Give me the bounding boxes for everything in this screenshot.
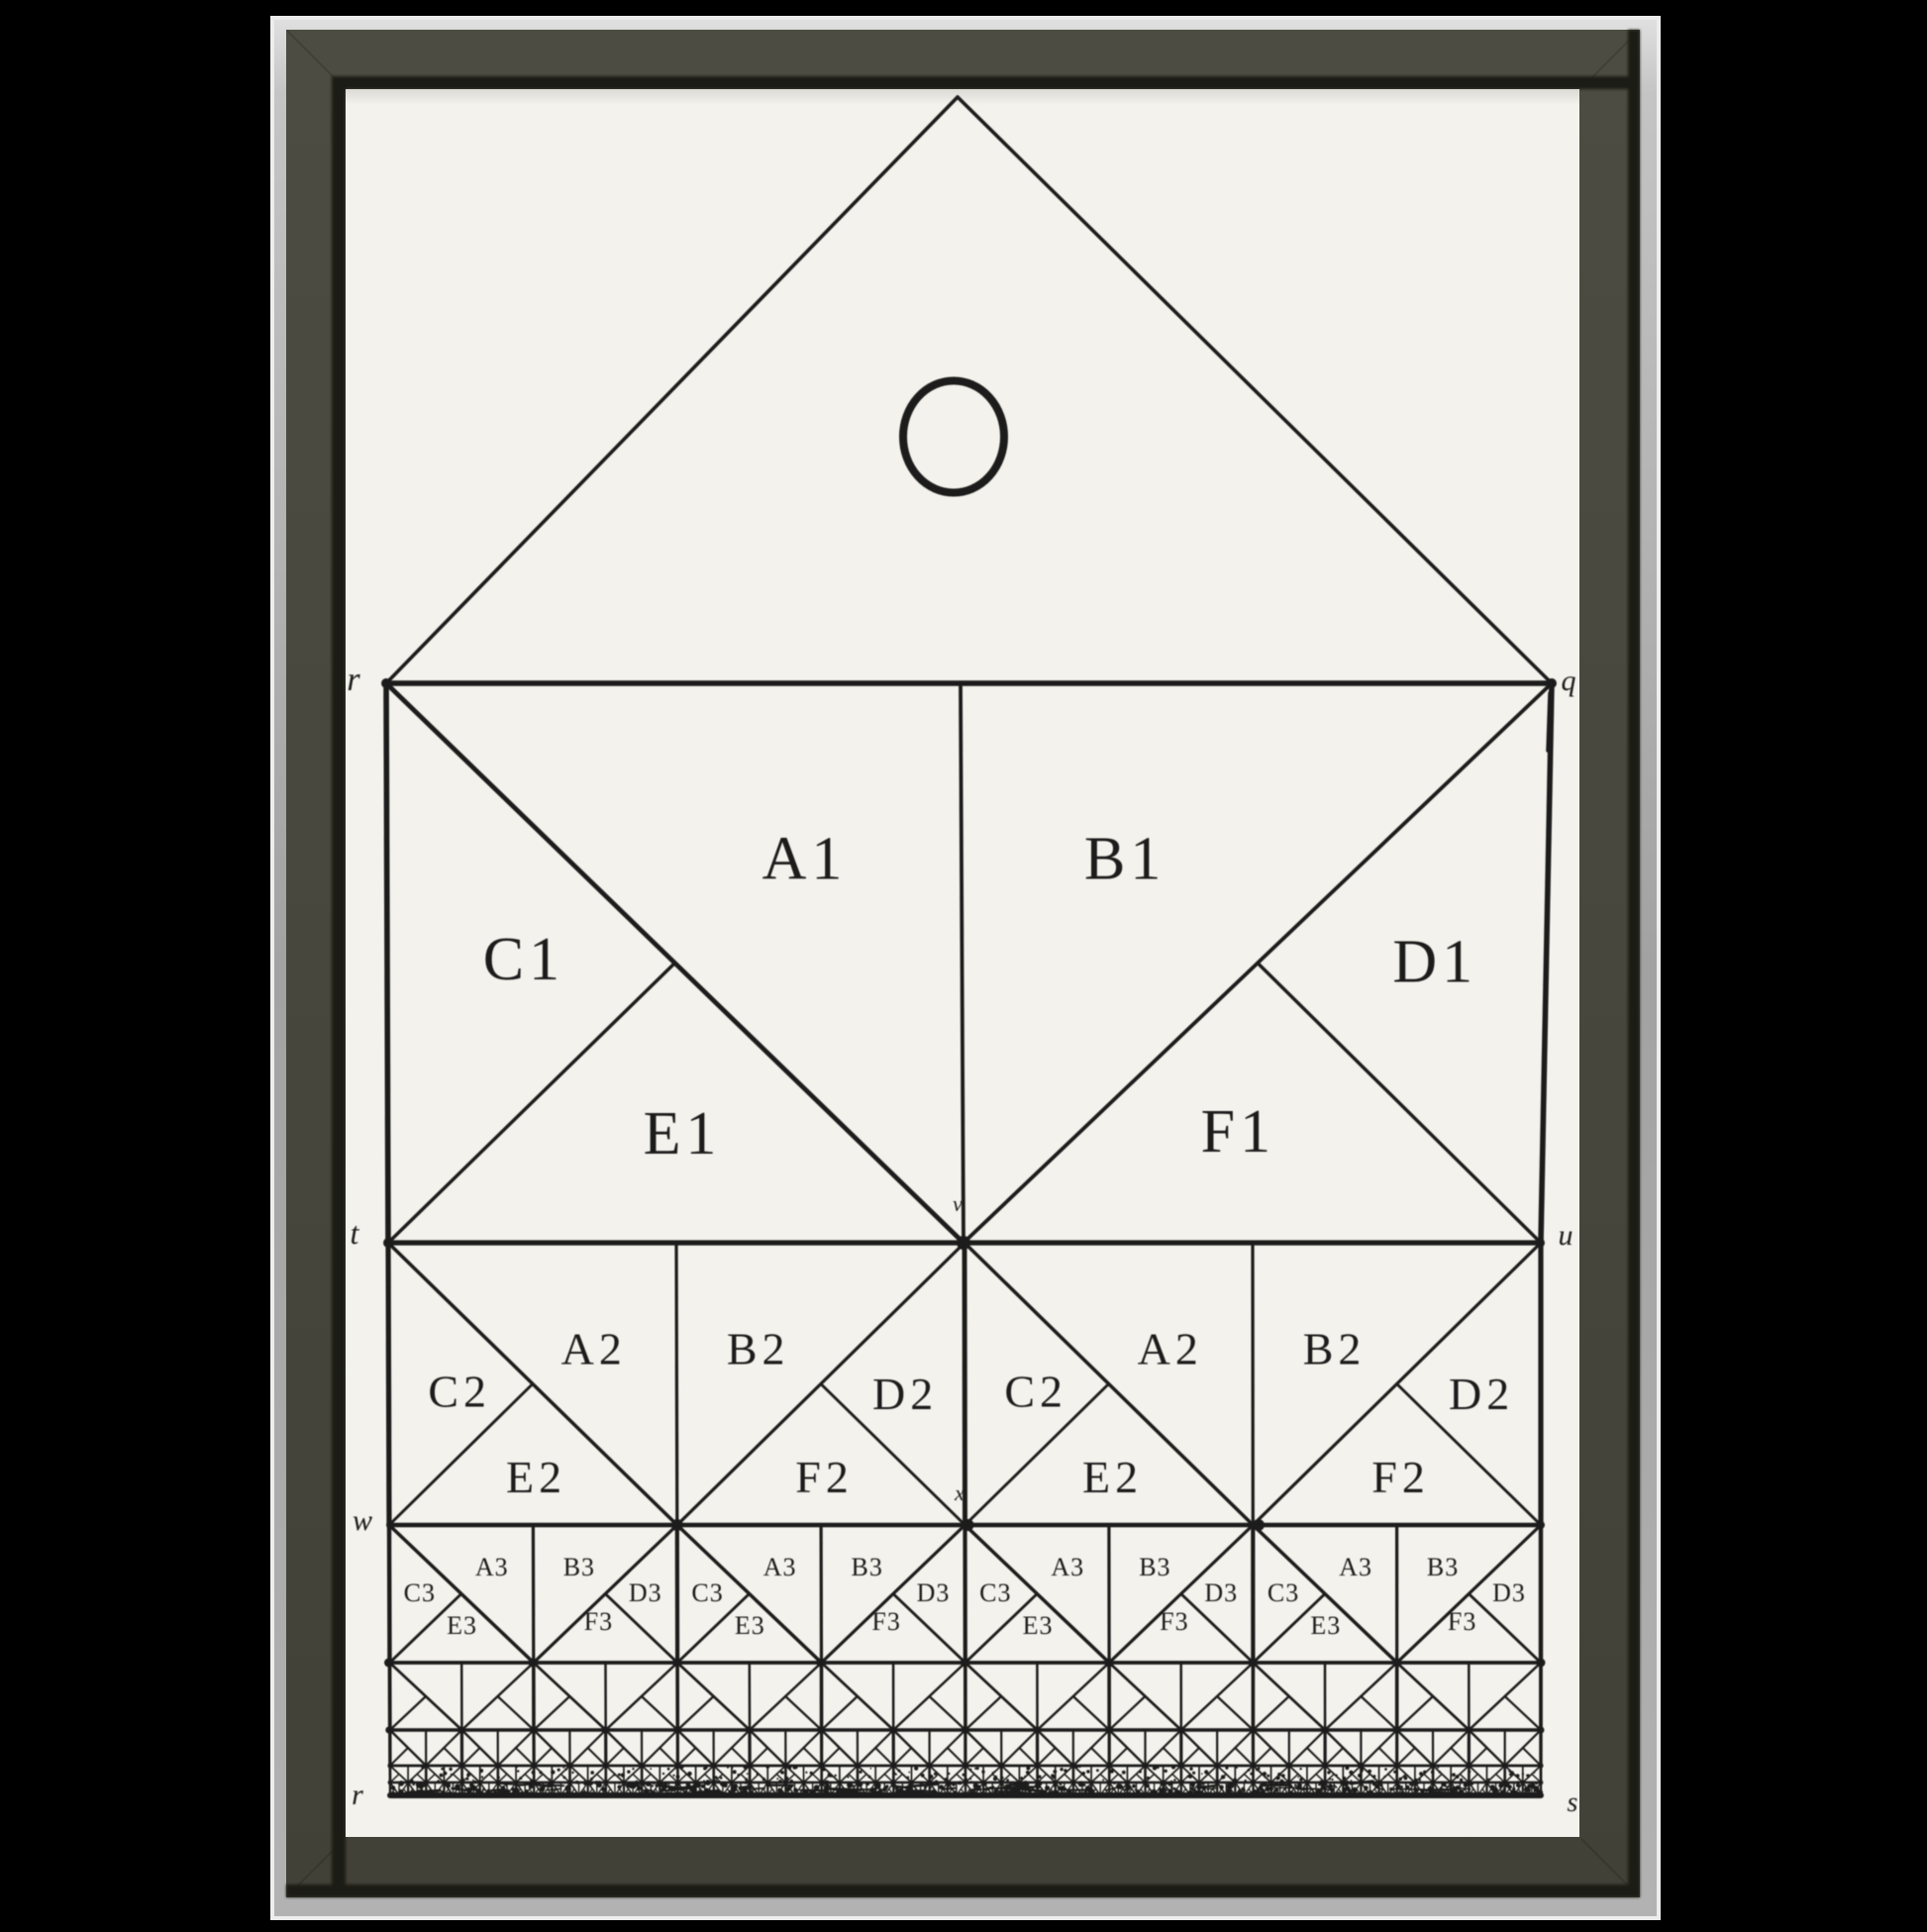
svg-text:C3: C3 (404, 1578, 436, 1607)
svg-text:B3: B3 (1427, 1553, 1459, 1581)
svg-text:C2: C2 (428, 1366, 491, 1416)
svg-text:D1: D1 (1392, 928, 1477, 995)
svg-text:C1: C1 (483, 926, 564, 993)
svg-text:D3: D3 (629, 1578, 662, 1607)
svg-text:F2: F2 (795, 1452, 854, 1502)
svg-text:E2: E2 (506, 1452, 566, 1502)
svg-text:E3: E3 (1310, 1611, 1341, 1640)
svg-text:E1: E1 (644, 1100, 722, 1168)
svg-text:F3: F3 (871, 1607, 900, 1636)
svg-text:A3: A3 (1339, 1553, 1372, 1581)
svg-text:r: r (347, 661, 360, 698)
svg-text:E2: E2 (1082, 1452, 1143, 1502)
svg-text:v: v (953, 1191, 963, 1216)
svg-text:x: x (954, 1480, 964, 1505)
svg-text:w: w (353, 1504, 372, 1537)
svg-text:F1: F1 (1201, 1098, 1275, 1166)
svg-text:B3: B3 (852, 1553, 883, 1581)
svg-text:C3: C3 (979, 1578, 1011, 1607)
svg-text:C3: C3 (1268, 1578, 1299, 1607)
svg-text:D3: D3 (1204, 1578, 1238, 1607)
svg-text:F2: F2 (1371, 1452, 1430, 1502)
svg-text:F3: F3 (1160, 1607, 1188, 1636)
svg-text:E3: E3 (447, 1611, 477, 1640)
svg-text:A3: A3 (763, 1553, 797, 1581)
svg-text:C2: C2 (1004, 1366, 1067, 1416)
svg-text:A3: A3 (1051, 1553, 1084, 1581)
svg-text:q: q (1562, 664, 1576, 697)
svg-text:D2: D2 (872, 1369, 938, 1419)
svg-text:t: t (351, 1215, 360, 1251)
svg-text:A2: A2 (1138, 1324, 1203, 1374)
svg-text:F3: F3 (584, 1607, 613, 1636)
svg-text:D2: D2 (1449, 1369, 1514, 1419)
svg-text:r: r (352, 1779, 363, 1811)
svg-text:s: s (1568, 1787, 1578, 1818)
svg-text:A2: A2 (561, 1324, 627, 1374)
svg-text:B2: B2 (1303, 1324, 1367, 1374)
svg-text:B1: B1 (1084, 825, 1166, 892)
svg-text:E3: E3 (1023, 1611, 1054, 1640)
svg-text:B3: B3 (563, 1553, 595, 1581)
svg-text:u: u (1559, 1219, 1573, 1252)
svg-text:E3: E3 (735, 1611, 765, 1640)
svg-text:C3: C3 (691, 1578, 723, 1607)
svg-text:A1: A1 (762, 825, 848, 892)
svg-text:B2: B2 (727, 1324, 790, 1374)
svg-text:F3: F3 (1448, 1607, 1476, 1636)
svg-text:D3: D3 (917, 1578, 951, 1607)
svg-text:A3: A3 (475, 1553, 509, 1581)
svg-text:B3: B3 (1139, 1553, 1170, 1581)
svg-text:D3: D3 (1492, 1578, 1526, 1607)
